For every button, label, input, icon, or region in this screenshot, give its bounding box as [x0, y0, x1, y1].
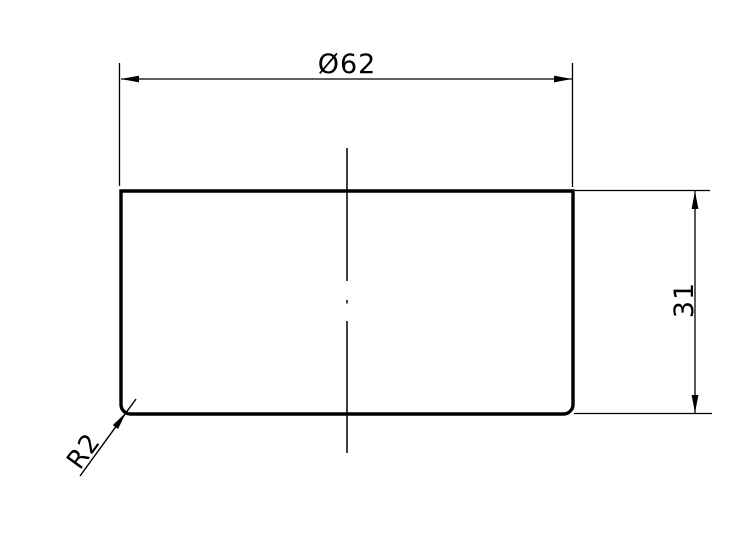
height-arrow-top [692, 191, 699, 209]
diameter-dimension: Ø62 [120, 49, 573, 187]
diameter-arrow-right [554, 76, 572, 83]
technical-drawing: Ø62 31 R2 [0, 0, 741, 538]
diameter-dimension-label: Ø62 [318, 49, 377, 80]
drawing-canvas: Ø62 31 R2 [0, 0, 741, 538]
radius-dimension-label: R2 [61, 428, 107, 475]
height-arrow-bottom [692, 395, 699, 413]
height-dimension-label: 31 [669, 282, 700, 318]
diameter-arrow-left [121, 76, 139, 83]
height-dimension: 31 [574, 191, 712, 414]
